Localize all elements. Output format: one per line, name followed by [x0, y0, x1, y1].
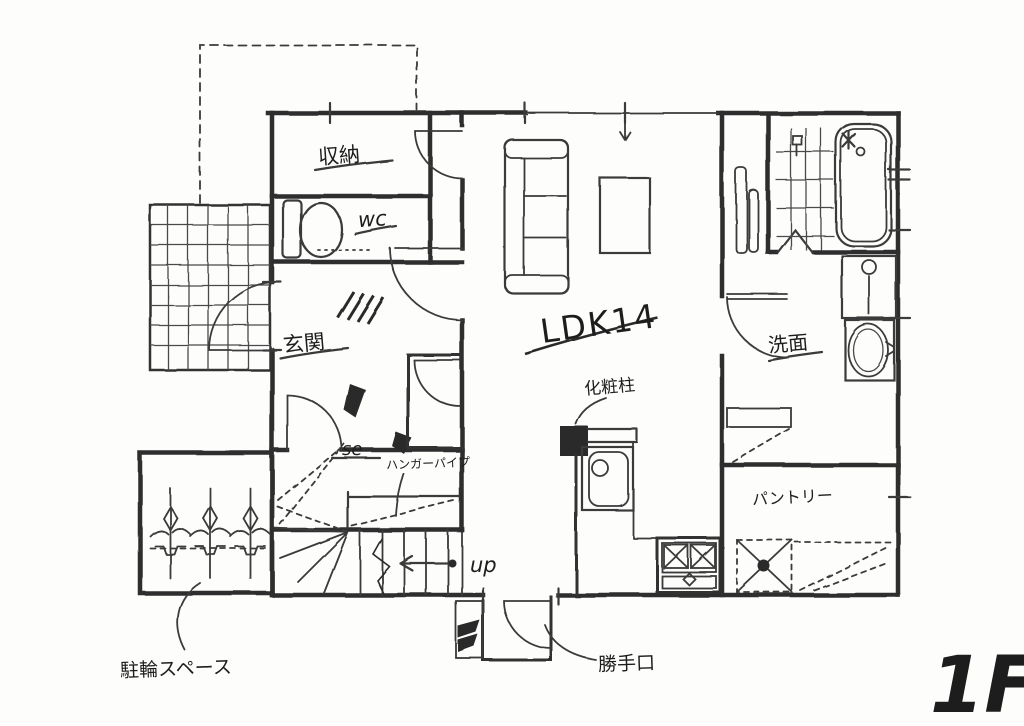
bathroom — [736, 115, 898, 253]
stairs — [274, 506, 456, 595]
linen-shelf-icon — [736, 168, 758, 253]
label-back-door: 勝手口 — [598, 652, 656, 676]
faucet-icon — [843, 132, 855, 149]
shower-tiles — [776, 128, 834, 250]
bicycle-icon — [150, 488, 190, 578]
label-hanger-pipe: ハンガーパイプ — [386, 455, 470, 472]
label-up: up — [470, 553, 497, 577]
label-washroom: 洗面 — [767, 330, 809, 357]
label-entrance: 玄関 — [282, 330, 326, 358]
label-wc: wc — [357, 206, 388, 232]
floor-tag: 1F — [930, 641, 1024, 726]
corridor-door — [415, 131, 462, 178]
table-icon — [600, 178, 650, 253]
back-door — [456, 588, 596, 660]
stove-icon — [657, 538, 720, 592]
pantry-shelves — [795, 542, 893, 590]
floor-plan-svg: 収納 wc 玄関 LDK14 化粧柱 洗面 se ハンガーパイプ パントリー u… — [0, 0, 1024, 726]
fridge-space-icon — [737, 540, 792, 592]
label-closet: se — [342, 439, 362, 460]
kitchen-sink-icon — [582, 447, 633, 510]
label-bicycle-space: 駐輪スペース — [120, 656, 232, 682]
bicycle-parking — [140, 453, 272, 650]
top-window — [330, 103, 718, 140]
upper-floor-outline — [200, 45, 417, 203]
bicycle-icon — [190, 488, 230, 578]
washing-machine-icon — [842, 256, 896, 318]
sofa-icon — [505, 140, 568, 293]
label-ldk: LDK14 — [538, 296, 660, 351]
porch-tiles — [150, 205, 281, 370]
kitchen — [560, 426, 792, 595]
bathtub-icon — [836, 124, 891, 246]
vanity-sink-icon — [845, 320, 894, 380]
label-underlines — [280, 160, 822, 458]
floor-plan-page: 収納 wc 玄関 LDK14 化粧柱 洗面 se ハンガーパイプ パントリー u… — [0, 0, 1024, 726]
pillar — [560, 426, 588, 456]
label-storage: 収納 — [317, 142, 361, 169]
washroom — [727, 256, 896, 462]
label-pillar: 化粧柱 — [583, 375, 636, 399]
label-pantry: パントリー — [752, 486, 834, 509]
bicycle-icon — [230, 488, 270, 578]
